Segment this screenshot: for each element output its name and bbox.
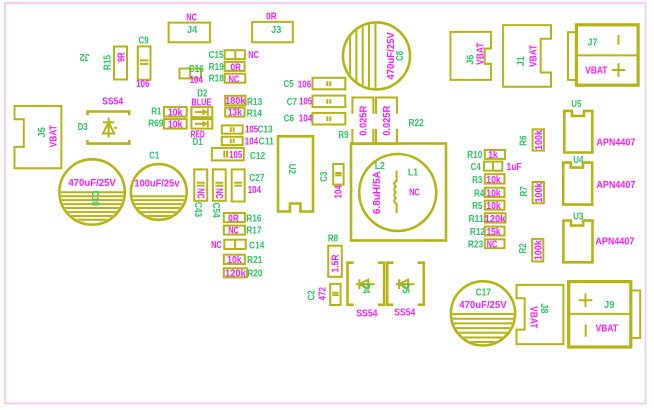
- svg-text:100k: 100k: [533, 240, 544, 260]
- svg-text:106: 106: [136, 79, 150, 90]
- svg-text:104: 104: [190, 75, 204, 86]
- svg-text:VBAT: VBAT: [528, 306, 539, 328]
- svg-text:10k: 10k: [486, 188, 501, 199]
- svg-text:10k: 10k: [486, 201, 501, 212]
- svg-text:C17: C17: [476, 288, 492, 299]
- svg-text:10k: 10k: [168, 119, 183, 130]
- svg-text:U5: U5: [571, 99, 582, 110]
- svg-text:D1: D1: [193, 137, 204, 148]
- svg-text:APN4407: APN4407: [596, 138, 635, 149]
- svg-text:J1: J1: [516, 56, 527, 67]
- svg-text:C3: C3: [319, 171, 330, 182]
- svg-text:NC: NC: [213, 188, 224, 199]
- svg-text:J7: J7: [587, 37, 598, 48]
- svg-text:105: 105: [229, 150, 242, 161]
- svg-text:R20: R20: [247, 269, 263, 280]
- svg-text:15k: 15k: [487, 227, 501, 238]
- svg-text:R8: R8: [328, 234, 339, 245]
- svg-text:J4: J4: [187, 25, 198, 36]
- svg-text:C15: C15: [208, 50, 224, 61]
- svg-text:C9: C9: [139, 35, 150, 46]
- svg-text:C13: C13: [257, 125, 273, 136]
- svg-text:C2: C2: [307, 290, 318, 301]
- svg-text:NC: NC: [211, 240, 222, 251]
- svg-text:U2: U2: [286, 164, 297, 175]
- svg-text:10k: 10k: [486, 175, 501, 186]
- svg-text:C5: C5: [284, 79, 295, 90]
- svg-text:13k: 13k: [228, 108, 242, 119]
- svg-text:100k: 100k: [534, 182, 545, 202]
- svg-text:C4: C4: [471, 162, 482, 173]
- svg-text:106: 106: [298, 79, 312, 90]
- svg-text:180k: 180k: [225, 96, 246, 107]
- svg-text:APN4407: APN4407: [596, 180, 635, 191]
- svg-text:1uF: 1uF: [507, 162, 522, 173]
- svg-text:470uF/25V: 470uF/25V: [459, 300, 507, 311]
- svg-text:VBAT: VBAT: [585, 66, 607, 77]
- svg-text:SS54: SS54: [356, 309, 377, 320]
- svg-text:C6: C6: [284, 114, 295, 125]
- svg-text:C12: C12: [250, 151, 266, 162]
- svg-text:120k: 120k: [225, 269, 246, 280]
- svg-text:VBAT: VBAT: [529, 45, 540, 67]
- svg-text:APN4407: APN4407: [595, 237, 634, 248]
- svg-text:C1: C1: [149, 150, 160, 161]
- svg-text:R14: R14: [247, 108, 263, 119]
- svg-text:R5: R5: [472, 201, 483, 212]
- svg-text:NC: NC: [487, 240, 498, 251]
- svg-text:C16: C16: [189, 64, 205, 75]
- svg-text:R1: R1: [151, 107, 162, 118]
- svg-text:R23: R23: [468, 240, 484, 251]
- svg-text:J2: J2: [79, 51, 90, 62]
- svg-text:10k: 10k: [168, 107, 183, 118]
- svg-text:D5: D5: [400, 283, 411, 294]
- svg-text:1k: 1k: [488, 150, 498, 161]
- svg-text:R11: R11: [468, 214, 484, 225]
- svg-text:0.025R: 0.025R: [382, 105, 393, 136]
- svg-text:NC: NC: [228, 226, 239, 237]
- svg-text:C8: C8: [395, 50, 406, 61]
- svg-text:104: 104: [334, 185, 345, 199]
- svg-text:C7: C7: [287, 97, 298, 108]
- svg-text:104: 104: [245, 136, 259, 147]
- svg-text:R4: R4: [474, 188, 485, 199]
- svg-text:1.5R: 1.5R: [330, 254, 341, 273]
- svg-text:0R: 0R: [230, 62, 241, 73]
- svg-text:470uF/25V: 470uF/25V: [68, 178, 116, 189]
- svg-text:VBAT: VBAT: [49, 125, 60, 147]
- svg-text:R69: R69: [148, 118, 164, 129]
- svg-text:SS54: SS54: [102, 97, 123, 108]
- svg-text:120k: 120k: [485, 214, 506, 225]
- svg-text:105: 105: [299, 96, 312, 107]
- svg-text:J3: J3: [271, 25, 282, 36]
- svg-text:R18: R18: [209, 74, 225, 85]
- svg-text:R6: R6: [519, 135, 530, 146]
- svg-text:10k: 10k: [227, 255, 242, 266]
- svg-text:NC: NC: [248, 50, 259, 61]
- svg-text:R7: R7: [519, 186, 530, 197]
- svg-text:NC: NC: [409, 188, 420, 199]
- svg-text:R9: R9: [338, 130, 349, 141]
- svg-text:VBAT: VBAT: [596, 323, 618, 334]
- svg-text:R2: R2: [518, 243, 529, 254]
- svg-text:100uF/25v: 100uF/25v: [134, 179, 179, 190]
- svg-text:R12: R12: [470, 227, 486, 238]
- svg-text:0R: 0R: [228, 213, 239, 224]
- svg-text:472: 472: [317, 287, 328, 301]
- svg-text:0.025R: 0.025R: [359, 105, 370, 136]
- svg-text:C11: C11: [259, 136, 275, 147]
- svg-text:NC: NC: [229, 74, 240, 85]
- svg-text:R16: R16: [246, 213, 262, 224]
- svg-text:SS54: SS54: [394, 307, 415, 318]
- svg-text:C10: C10: [89, 191, 100, 207]
- svg-text:D3: D3: [78, 122, 89, 133]
- svg-text:C14: C14: [249, 241, 265, 252]
- svg-text:R15: R15: [103, 54, 114, 70]
- svg-text:6.8uH/5A: 6.8uH/5A: [372, 171, 383, 214]
- svg-text:C54: C54: [210, 202, 221, 218]
- svg-text:J9: J9: [604, 300, 615, 311]
- svg-text:R22: R22: [408, 118, 424, 129]
- svg-text:104: 104: [248, 185, 262, 196]
- svg-text:9R: 9R: [116, 52, 127, 62]
- svg-text:D4: D4: [360, 283, 371, 294]
- svg-text:R17: R17: [246, 226, 262, 237]
- svg-text:R19: R19: [209, 62, 225, 73]
- svg-text:100k: 100k: [534, 130, 545, 150]
- svg-text:R13: R13: [247, 97, 263, 108]
- svg-text:VBAT: VBAT: [476, 43, 487, 65]
- svg-text:R21: R21: [247, 255, 263, 266]
- svg-text:J5: J5: [37, 127, 48, 138]
- svg-text:L2: L2: [375, 161, 386, 172]
- svg-text:R3: R3: [472, 175, 483, 186]
- svg-text:NC: NC: [194, 188, 205, 199]
- svg-text:R10: R10: [467, 150, 483, 161]
- svg-text:C27: C27: [249, 173, 265, 184]
- svg-text:C43: C43: [192, 202, 203, 218]
- svg-text:L1: L1: [408, 168, 419, 179]
- svg-text:104: 104: [299, 114, 313, 125]
